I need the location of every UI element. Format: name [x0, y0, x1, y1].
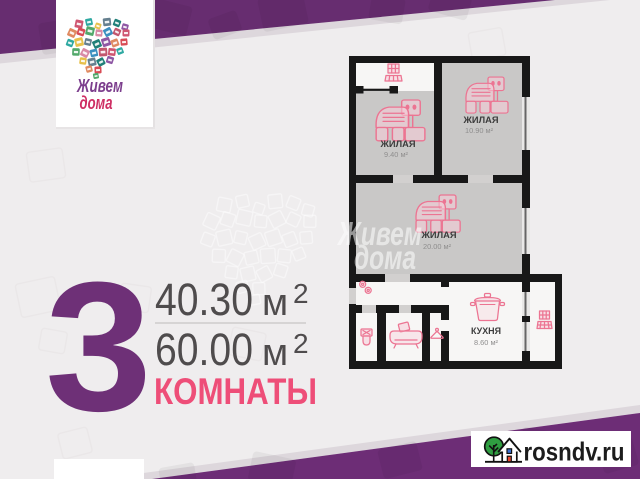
svg-text:ЖИЛАЯ: ЖИЛАЯ	[463, 115, 499, 126]
svg-text:8.60 м²: 8.60 м²	[474, 338, 499, 347]
svg-text:дома: дома	[354, 239, 416, 276]
svg-text:2: 2	[293, 328, 309, 359]
svg-text:м: м	[262, 332, 288, 374]
svg-text:КОМНАТЫ: КОМНАТЫ	[154, 370, 317, 412]
svg-text:60.00: 60.00	[155, 324, 253, 375]
svg-text:КУХНЯ: КУХНЯ	[471, 326, 501, 337]
svg-text:ЖИЛАЯ: ЖИЛАЯ	[380, 139, 416, 150]
svg-text:ЖИЛАЯ: ЖИЛАЯ	[421, 230, 457, 241]
svg-text:10.90 м²: 10.90 м²	[465, 126, 494, 135]
svg-text:дома: дома	[80, 93, 113, 113]
svg-text:3: 3	[45, 243, 152, 449]
svg-text:40.30: 40.30	[155, 274, 253, 325]
svg-text:м: м	[262, 282, 288, 324]
svg-text:9.40 м²: 9.40 м²	[384, 150, 409, 159]
svg-text:20.00 м²: 20.00 м²	[423, 242, 452, 251]
svg-text:rosndv.ru: rosndv.ru	[524, 437, 625, 467]
svg-text:2: 2	[293, 278, 309, 309]
